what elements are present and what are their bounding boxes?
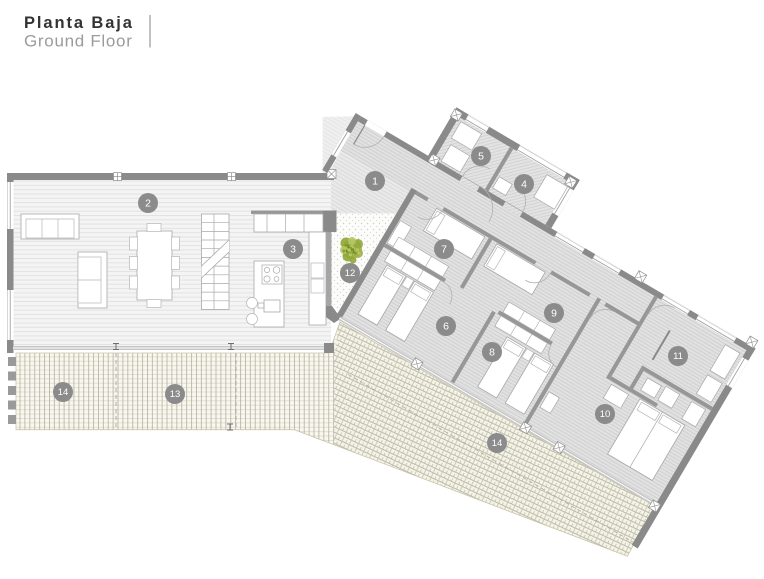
svg-text:7: 7 <box>441 244 447 256</box>
svg-text:14: 14 <box>58 387 69 398</box>
svg-text:2: 2 <box>145 198 151 210</box>
svg-text:3: 3 <box>290 244 296 256</box>
svg-text:6: 6 <box>443 321 449 333</box>
svg-text:12: 12 <box>345 268 356 279</box>
svg-text:4: 4 <box>521 179 527 191</box>
svg-text:14: 14 <box>492 438 503 449</box>
svg-text:8: 8 <box>489 347 495 359</box>
svg-text:10: 10 <box>600 409 611 420</box>
svg-text:11: 11 <box>673 351 683 362</box>
svg-text:Planta Baja: Planta Baja <box>24 14 134 32</box>
svg-text:13: 13 <box>170 389 181 400</box>
svg-text:9: 9 <box>551 308 557 320</box>
svg-text:Ground Floor: Ground Floor <box>24 32 133 51</box>
svg-text:5: 5 <box>478 151 484 163</box>
svg-text:1: 1 <box>372 176 378 188</box>
